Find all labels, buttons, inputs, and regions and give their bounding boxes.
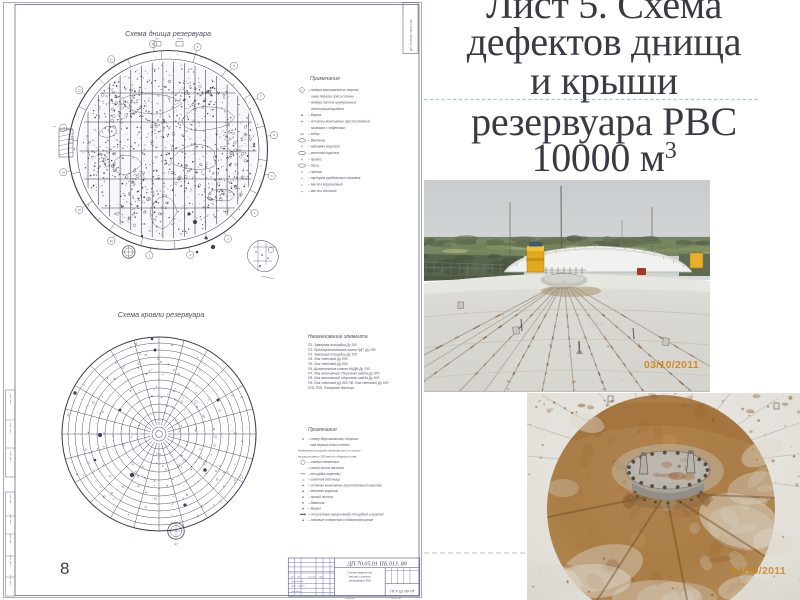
svg-text:Измерения площади прободились: Измерения площади прободились по сетке xyxy=(298,449,361,453)
svg-text:14: 14 xyxy=(153,390,155,392)
svg-text:12: 12 xyxy=(122,444,124,446)
svg-text:9: 9 xyxy=(192,369,193,371)
svg-text:1: 1 xyxy=(207,403,208,405)
svg-text:✕: ✕ xyxy=(301,157,304,161)
svg-text:– набивная коррозия: – набивная коррозия xyxy=(307,145,340,149)
svg-text:уч: уч xyxy=(301,191,303,193)
svg-text:приварка с чефектам: приварка с чефектам xyxy=(311,126,345,130)
svg-text:10: 10 xyxy=(171,454,173,456)
svg-text:– отсутствие зазора между площ: – отсутствие зазора между площадкой и кр… xyxy=(307,512,384,516)
svg-text:1: 1 xyxy=(224,491,225,493)
svg-text:– остатки монтажных приспособл: – остатки монтажных приспособлений xyxy=(307,120,370,124)
svg-text:– Вырыв: – Вырыв xyxy=(307,507,321,511)
svg-text:16: 16 xyxy=(114,452,116,454)
svg-text:уч: уч xyxy=(301,178,303,180)
svg-text:– трещина разделочных направок: – трещина разделочных направок xyxy=(307,176,361,180)
svg-text:П4. Люк световой Ду 500: П4. Люк световой Ду 500 xyxy=(308,357,348,361)
svg-text:Примечания: Примечания xyxy=(308,427,337,433)
svg-text:12: 12 xyxy=(78,88,82,92)
svg-text:Подп. дата: Подп. дата xyxy=(10,422,12,434)
svg-text:ДП 70.05.01 ПБ.013. 80: ДП 70.05.01 ПБ.013. 80 xyxy=(346,562,407,568)
svg-text:Наименование элемента: Наименование элемента xyxy=(308,334,368,340)
svg-text:14: 14 xyxy=(114,378,116,380)
svg-text:Схема днища резервуара: Схема днища резервуара xyxy=(125,29,211,38)
svg-text:– забор: – забор xyxy=(307,132,320,136)
svg-text:Подп. дата: Подп. дата xyxy=(10,554,12,566)
svg-text:6: 6 xyxy=(186,482,187,484)
svg-text:11: 11 xyxy=(110,57,113,61)
svg-text:– номер листа настила: – номер листа настила xyxy=(307,466,344,470)
svg-text:– местная коррозия: – местная коррозия xyxy=(307,151,339,155)
svg-text:Пров.: Пров. xyxy=(291,585,296,587)
svg-text:6: 6 xyxy=(184,410,185,412)
svg-text:16: 16 xyxy=(182,398,184,400)
svg-text:швов первого пояса стенки: швов первого пояса стенки xyxy=(311,94,354,98)
svg-text:на расстоянии 100 мм от сборно: на расстоянии 100 мм от сборного шва xyxy=(298,454,356,458)
svg-text:7: 7 xyxy=(180,521,181,523)
svg-text:ДУ: ДУ xyxy=(174,543,178,546)
svg-text:П7. Люк монтажный сборочная ша: П7. Люк монтажный сборочная шайба Ду 500 xyxy=(308,372,379,376)
svg-text:Подп. дата: Подп. дата xyxy=(10,533,12,545)
svg-text:Схема кровли резервуара: Схема кровли резервуара xyxy=(118,310,205,319)
svg-text:Подп. дата: Подп. дата xyxy=(10,393,12,405)
svg-text:– номера элементов: – номера элементов xyxy=(307,460,339,464)
svg-text:03/10/2011: 03/10/2011 xyxy=(644,359,699,371)
svg-text:– явк-поз коррозийный: – явк-поз коррозийный xyxy=(307,183,343,187)
svg-text:2шт: 2шт xyxy=(52,126,56,128)
svg-text:ПЛ1-ПЛ6. Пожарные датчики: ПЛ1-ПЛ6. Пожарные датчики xyxy=(308,386,354,390)
svg-text:16: 16 xyxy=(141,475,143,477)
svg-text:– номер Вертикального сборного: – номер Вертикального сборного xyxy=(307,437,359,441)
svg-text:– явк-поз обычный: – явк-поз обычный xyxy=(307,189,337,193)
svg-text:ТРМ2: ТРМ2 xyxy=(177,39,184,41)
svg-text:Утв.: Утв. xyxy=(297,591,301,593)
svg-text:– прожог: – прожог xyxy=(307,157,322,161)
svg-text:19: 19 xyxy=(231,431,233,433)
svg-text:6: 6 xyxy=(181,395,182,397)
svg-text:П8. Люк монтажный сборочная ша: П8. Люк монтажный сборочная шайба Ду 500 xyxy=(308,376,379,380)
svg-text:Иванов: Иванов xyxy=(297,581,304,583)
svg-text:Подп. дата: Подп. дата xyxy=(10,513,12,525)
svg-text:Формат А1: Формат А1 xyxy=(391,597,402,600)
svg-text:10: 10 xyxy=(191,468,193,470)
svg-text:П5. Люк световой Ду 500: П5. Люк световой Ду 500 xyxy=(308,362,348,366)
svg-text:резервуара №8: резервуара №8 xyxy=(348,579,371,583)
svg-text:14: 14 xyxy=(62,170,66,174)
svg-text:– Вырыв: – Вырыв xyxy=(307,113,321,117)
svg-text:П2. Предохранительные клапа НД: П2. Предохранительные клапа НДТ Ду 250 xyxy=(308,348,376,352)
svg-text:– номера вертикальных сварных: – номера вертикальных сварных xyxy=(307,88,359,92)
svg-text:Подп. дата: Подп. дата xyxy=(10,574,12,586)
svg-text:шва первого пояса стенки: шва первого пояса стенки xyxy=(310,443,350,447)
svg-text:8: 8 xyxy=(202,373,203,375)
svg-text:✕: ✕ xyxy=(301,145,304,149)
svg-text:Подп.: Подп. xyxy=(319,576,324,578)
svg-text:уч: уч xyxy=(301,185,303,187)
svg-text:03/10/2011: 03/10/2011 xyxy=(731,565,786,577)
svg-text:П6. Дыхательные клапан НКДМ Ду: П6. Дыхательные клапан НКДМ Ду 250 xyxy=(308,367,370,371)
svg-text:10: 10 xyxy=(226,370,228,372)
svg-text:– Вмятина: – Вмятина xyxy=(307,138,325,142)
svg-text:– остатки монтажных приспособл: – остатки монтажных приспособлений накле… xyxy=(307,483,382,487)
svg-text:Сидоров: Сидоров xyxy=(297,585,305,587)
svg-text:СМ7: СМ7 xyxy=(155,39,160,41)
svg-text:П1. Замерная площадка Ду 150: П1. Замерная площадка Ду 150 xyxy=(308,343,357,347)
svg-text:13: 13 xyxy=(151,369,153,371)
svg-text:10: 10 xyxy=(151,42,155,46)
svg-text:– номера листов центральных: – номера листов центральных xyxy=(307,101,357,105)
svg-text:ПГУ гр.08-ПГ: ПГУ гр.08-ПГ xyxy=(390,589,416,594)
svg-text:П9. Люк световой Ду 500 ПВ. Лю: П9. Люк световой Ду 500 ПВ. Люк световой… xyxy=(308,381,389,385)
svg-text:11: 11 xyxy=(175,368,177,370)
svg-text:16: 16 xyxy=(199,478,201,480)
svg-text:16: 16 xyxy=(110,239,114,243)
svg-text:11: 11 xyxy=(183,486,185,488)
svg-text:Лист: Лист xyxy=(297,576,301,578)
svg-text:– площадка-переходы: – площадка-переходы xyxy=(307,472,341,476)
svg-text:П3. Замерная площадка Ду 150: П3. Замерная площадка Ду 150 xyxy=(308,353,357,357)
svg-text:полотнища/окрайков: полотнища/окрайков xyxy=(311,107,344,111)
svg-text:Подп. дата: Подп. дата xyxy=(10,493,12,505)
svg-text:ДП 70.05.01 ПБ.013.80: ДП 70.05.01 ПБ.013.80 xyxy=(409,19,413,51)
svg-text:– Вмятина: – Вмятина xyxy=(307,501,325,505)
svg-text:– местная коррозия: – местная коррозия xyxy=(307,489,338,493)
svg-text:– наплыв: – наплыв xyxy=(307,170,322,174)
svg-text:1: 1 xyxy=(155,414,156,416)
svg-text:– сквозные отверстия в обвязоч: – сквозные отверстия в обвязочном уголке xyxy=(307,518,373,522)
svg-text:– свищ: – свищ xyxy=(307,164,319,168)
svg-text:Примечания: Примечания xyxy=(310,76,340,82)
svg-text:Подп. дата: Подп. дата xyxy=(10,450,12,462)
svg-text:11: 11 xyxy=(158,493,160,495)
svg-text:✕: ✕ xyxy=(301,170,304,174)
svg-text:– прокой листов: – прокой листов xyxy=(307,495,333,499)
svg-text:№ докум.: № докум. xyxy=(308,575,317,578)
svg-text:– шахтная лестница: – шахтная лестница xyxy=(307,478,340,482)
svg-text:15: 15 xyxy=(78,208,82,212)
